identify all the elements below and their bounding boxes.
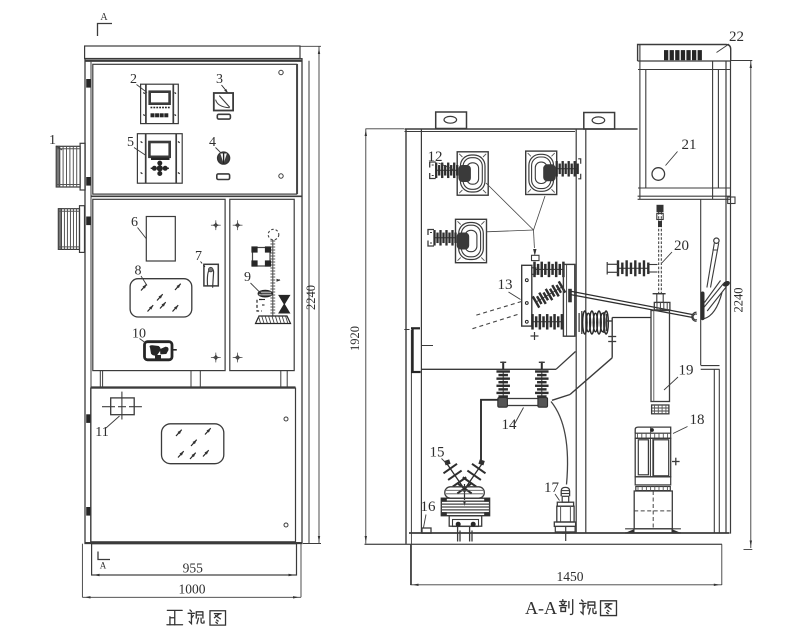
svg-text:18: 18 xyxy=(690,412,705,428)
svg-text:A-A: A-A xyxy=(525,598,557,618)
svg-text:1000: 1000 xyxy=(179,582,206,597)
svg-text:4: 4 xyxy=(209,135,216,150)
svg-text:9: 9 xyxy=(244,270,251,285)
svg-text:17: 17 xyxy=(544,480,560,496)
svg-text:A: A xyxy=(100,561,107,571)
svg-text:21: 21 xyxy=(682,137,697,153)
svg-text:8: 8 xyxy=(135,264,142,279)
svg-text:10: 10 xyxy=(132,327,146,342)
svg-text:1450: 1450 xyxy=(557,569,584,584)
svg-text:1920: 1920 xyxy=(348,326,362,351)
svg-text:A: A xyxy=(100,12,108,23)
svg-text:2240: 2240 xyxy=(732,288,746,313)
svg-text:3: 3 xyxy=(216,72,223,87)
svg-text:14: 14 xyxy=(502,417,518,433)
svg-text:2240: 2240 xyxy=(304,285,318,310)
svg-text:16: 16 xyxy=(421,499,437,515)
svg-text:6: 6 xyxy=(131,215,138,230)
svg-text:2: 2 xyxy=(130,72,137,87)
svg-text:5: 5 xyxy=(127,135,134,150)
svg-text:12: 12 xyxy=(428,149,443,165)
svg-text:15: 15 xyxy=(430,445,445,461)
svg-text:955: 955 xyxy=(183,561,204,576)
svg-text:1: 1 xyxy=(49,133,56,148)
svg-text:13: 13 xyxy=(498,277,513,293)
svg-text:22: 22 xyxy=(729,29,744,45)
svg-text:20: 20 xyxy=(674,238,689,254)
svg-text:19: 19 xyxy=(679,363,694,379)
